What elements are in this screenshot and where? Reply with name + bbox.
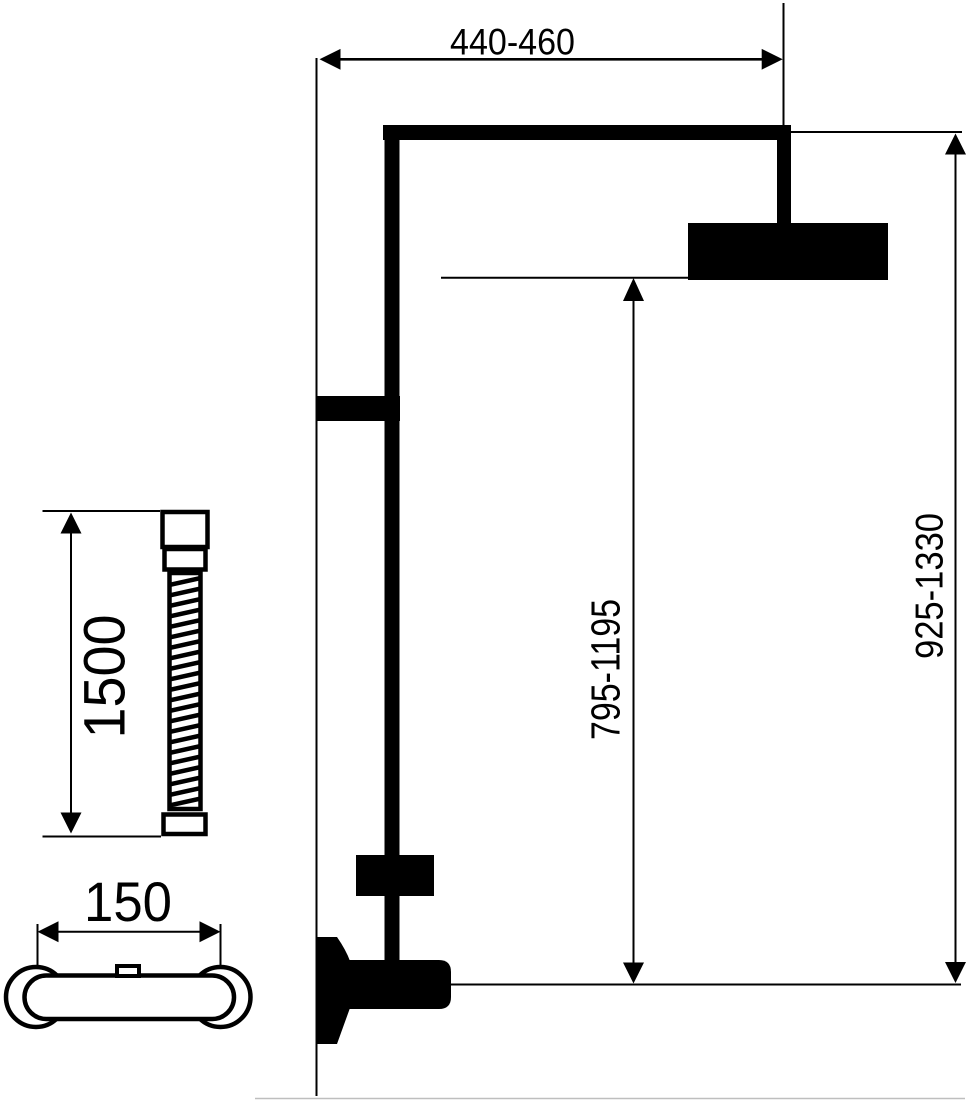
svg-text:795-1195: 795-1195	[583, 599, 629, 740]
svg-text:925-1330: 925-1330	[909, 513, 952, 659]
svg-text:1500: 1500	[73, 615, 138, 739]
svg-text:440-460: 440-460	[450, 21, 575, 63]
svg-text:150: 150	[84, 871, 172, 933]
